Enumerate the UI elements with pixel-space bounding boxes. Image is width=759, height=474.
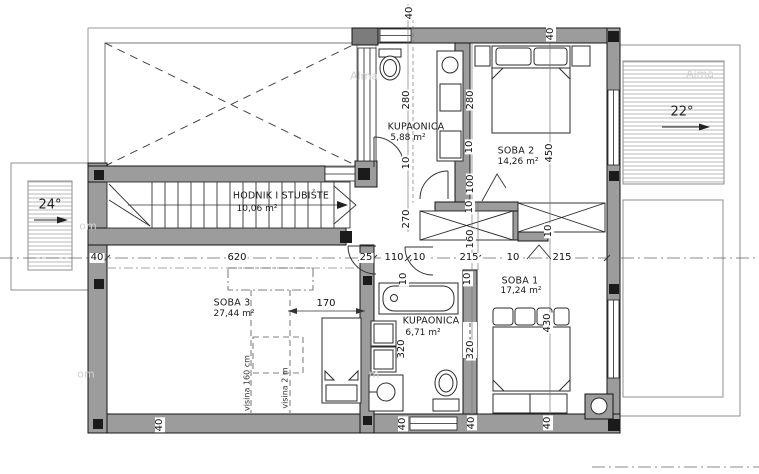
dimension-label: 215 [551,253,572,263]
dimension-label: 40 [546,27,556,42]
dimension-label: 10 [399,272,409,287]
room-area-label: 10,06 m² [236,204,277,214]
watermark-fragment: Alma [350,70,378,83]
dimension-label: 10 [412,253,427,263]
room-area-label: 17,24 m² [500,286,541,296]
floor-plan: 24° 22° 40620251101021510215170402801027… [0,0,759,474]
room-name-label: KUPAONICA [388,122,445,133]
watermark-fragment: om [79,220,96,233]
dimension-label: 320 [397,338,407,359]
watermark-fragment: m [369,368,380,381]
room-name-label: SOBA 3 [214,298,251,309]
room-name-label: KUPAONICA [403,316,460,327]
dimension-label: 450 [545,142,555,163]
room-area-label: 6,71 m² [405,328,440,338]
dimension-label: 270 [402,208,412,229]
watermark-fragment: om [77,368,94,381]
dimension-label: 40 [90,253,105,263]
dimension-label: 40 [155,418,165,433]
roof-slope-left-label: 24° [38,198,61,213]
dimension-label: 320 [466,339,476,360]
room-name-label: HODNIK I STUBIŠTE [233,191,329,202]
dimension-label: 10 [465,140,475,155]
room-area-label: 14,26 m² [497,157,538,167]
dimension-label: 280 [466,89,476,110]
dimension-label: 110 [383,253,404,263]
room-name-label: SOBA 2 [498,146,535,157]
dimension-label: 10 [402,156,412,171]
dimension-label: 280 [402,89,412,110]
dimension-label: 25 [359,253,374,263]
dimension-label: 170 [315,299,336,309]
dimension-label: 430 [543,312,553,333]
dimension-label: 215 [458,253,479,263]
labels-layer: 24° 22° 40620251101021510215170402801027… [0,0,759,474]
dimension-label: 40 [405,6,415,21]
ceiling-height-label: visina 2 m [281,367,290,408]
dimension-label: 40 [398,417,408,432]
watermark-fragment: Alma [686,68,714,81]
roof-slope-right-label: 22° [670,105,693,120]
dimension-label: 100 [466,173,476,194]
dimension-label: 10 [506,253,521,263]
ceiling-height-label: visina 160 cm [243,355,252,411]
room-area-label: 5,88 m² [390,133,425,143]
dimension-label: 10 [465,200,475,215]
room-area-label: 27,44 m² [213,309,254,319]
dimension-label: 160 [466,228,476,249]
dimension-label: 40 [467,416,477,431]
room-name-label: SOBA 1 [502,276,539,287]
dimension-label: 10 [463,272,473,287]
dimension-label: 40 [543,416,553,431]
dimension-label: 620 [226,253,247,263]
dimension-label: 10 [544,224,554,239]
